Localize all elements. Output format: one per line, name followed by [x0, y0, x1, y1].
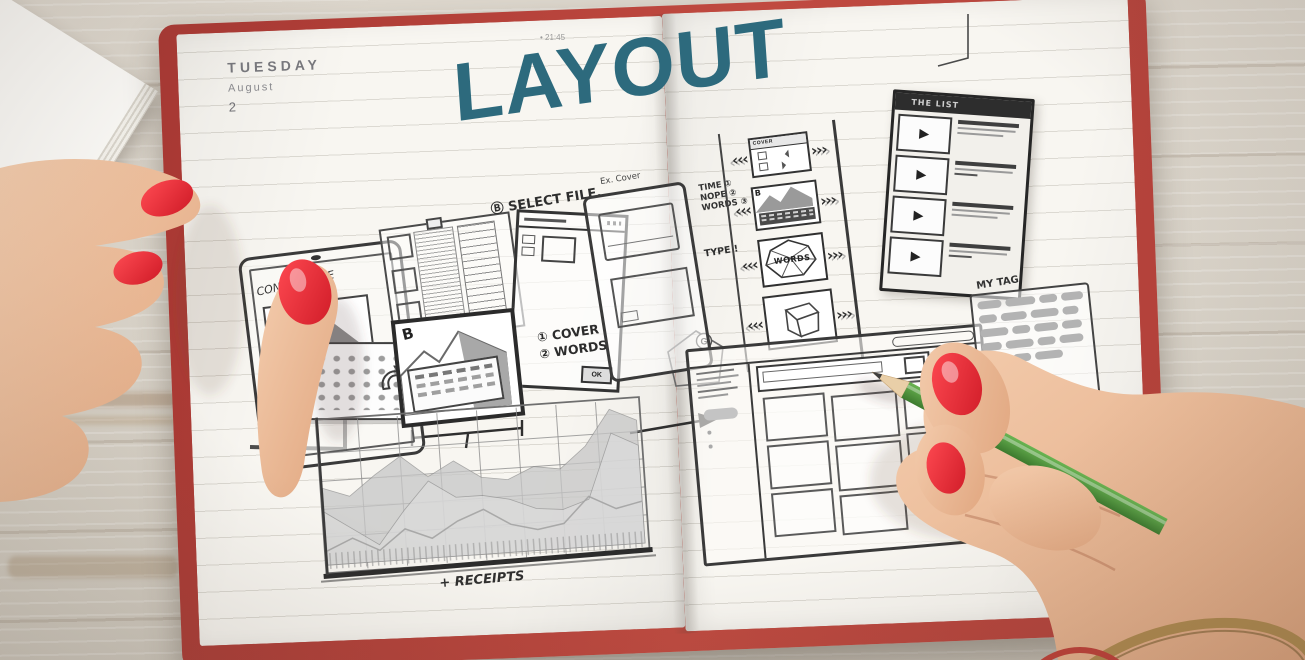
hand-shadow: [176, 205, 244, 395]
hands-layer: [0, 0, 1305, 660]
desk-scene: TUESDAY August 2 • 21:45 LAYOUT CONTENT …: [0, 0, 1305, 660]
left-hand: [0, 159, 338, 502]
